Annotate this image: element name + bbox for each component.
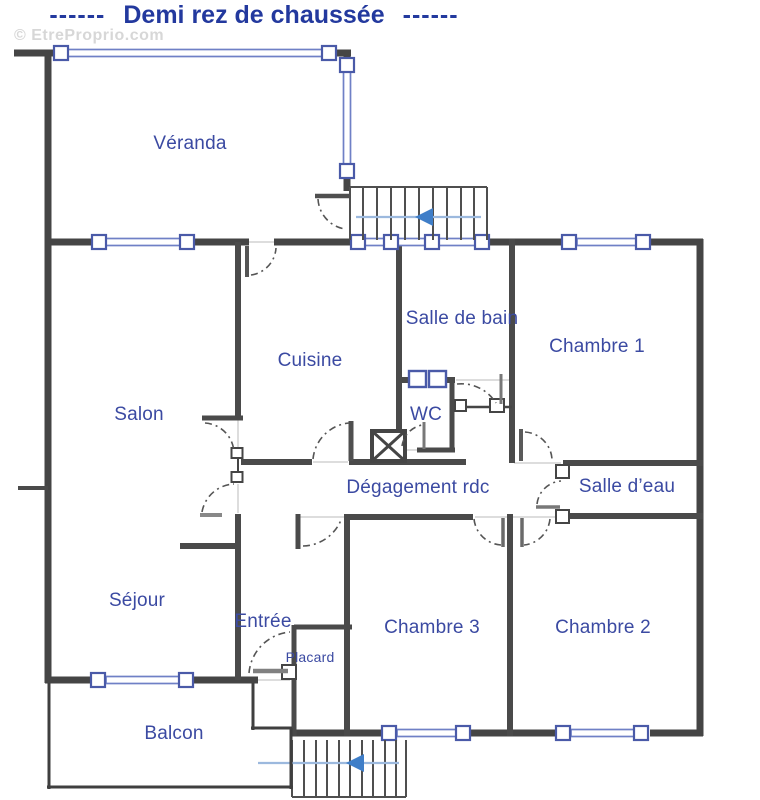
room-label-degagement: Dégagement rdc [346,477,489,499]
page-title: Demi rez de chaussée [123,1,384,30]
room-label-placard: Placard [286,649,335,665]
room-label-cuisine: Cuisine [278,350,343,372]
room-label-sejour: Séjour [109,590,165,612]
stair-direction-arrow-down [346,754,364,772]
room-label-chambre-3: Chambre 3 [384,617,480,639]
watermark: © EtreProprio.com [14,27,164,45]
room-label-chambre-1: Chambre 1 [549,336,645,358]
staircase-upper [350,187,487,240]
title-right-dashes: ------ [403,1,459,30]
room-label-wc: WC [410,404,442,426]
room-label-veranda: Véranda [153,133,226,155]
room-label-balcon: Balcon [144,723,203,745]
room-label-salon: Salon [114,404,164,426]
duct-x-box [372,431,405,461]
room-label-salle-d-eau: Salle d’eau [579,476,675,498]
room-label-salle-de-bain: Salle de bain [406,308,518,330]
plan-title: ------ Demi rez de chaussée ------ [28,1,480,30]
title-left-dashes: ------ [49,1,105,30]
room-label-chambre-2: Chambre 2 [555,617,651,639]
room-label-entree: Entrée [234,611,291,633]
floor-plan-canvas: ------ Demi rez de chaussée ------ © Etr… [0,0,760,800]
window-glass [66,50,637,737]
floor-plan-drawing [0,0,760,800]
stair-direction-arrow-up [415,208,433,226]
